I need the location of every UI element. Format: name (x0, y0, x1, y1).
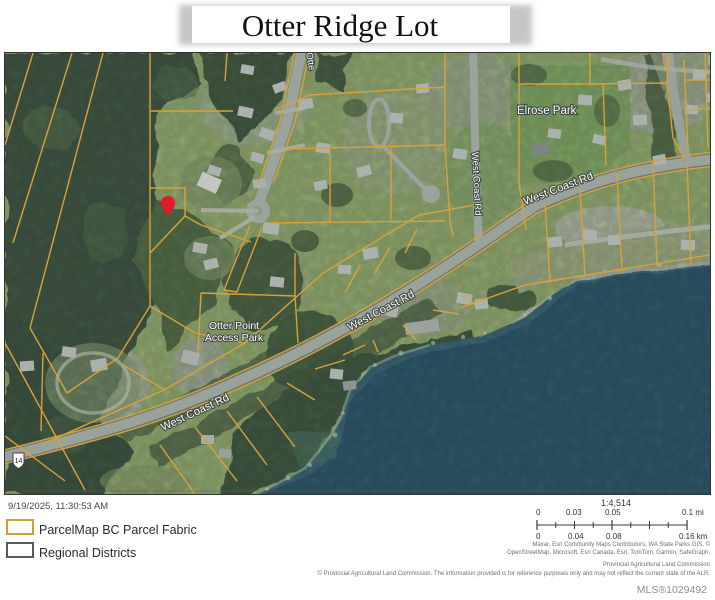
svg-text:Access Park: Access Park (205, 332, 264, 344)
svg-text:Elrose Park: Elrose Park (517, 105, 577, 117)
svg-text:Otter Point: Otter Point (209, 320, 259, 332)
svg-text:14: 14 (15, 458, 23, 465)
